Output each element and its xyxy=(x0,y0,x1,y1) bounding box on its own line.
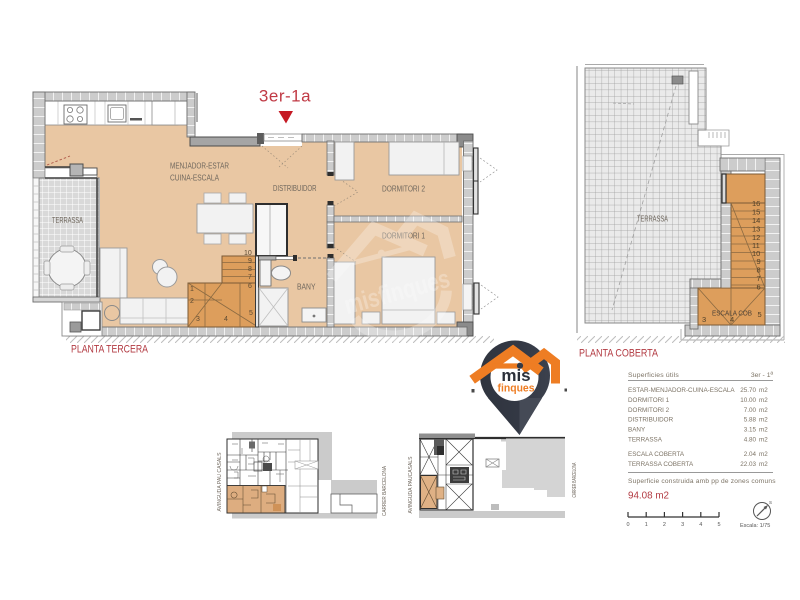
svg-text:MENJADOR-ESTAR: MENJADOR-ESTAR xyxy=(170,162,229,171)
svg-text:0: 0 xyxy=(627,522,630,528)
svg-text:m2: m2 xyxy=(759,387,768,394)
svg-text:94.08 m2: 94.08 m2 xyxy=(628,490,669,502)
svg-text:3er-1a: 3er-1a xyxy=(259,87,311,106)
svg-text:4.80: 4.80 xyxy=(744,437,757,444)
svg-text:Superficie construida amb pp d: Superficie construida amb pp de zones co… xyxy=(628,478,776,485)
svg-text:PLANTA COBERTA: PLANTA COBERTA xyxy=(579,348,659,360)
svg-text:4: 4 xyxy=(699,522,702,528)
svg-text:ESTAR-MENJADOR-CUINA-ESCALA: ESTAR-MENJADOR-CUINA-ESCALA xyxy=(628,387,735,394)
svg-text:25.70: 25.70 xyxy=(740,387,756,394)
svg-text:Escala: 1/75: Escala: 1/75 xyxy=(740,523,770,529)
svg-text:7.00: 7.00 xyxy=(744,407,757,414)
svg-text:3er - 1ª: 3er - 1ª xyxy=(751,372,774,379)
svg-text:4: 4 xyxy=(224,316,228,323)
svg-text:m2: m2 xyxy=(759,417,768,424)
svg-text:3: 3 xyxy=(681,522,684,528)
svg-text:4: 4 xyxy=(730,315,734,324)
svg-text:AVINGUDA PAU CASALS: AVINGUDA PAU CASALS xyxy=(217,452,223,511)
svg-text:5.88: 5.88 xyxy=(744,417,757,424)
svg-text:Superficies útils: Superficies útils xyxy=(628,372,679,379)
svg-text:10.00: 10.00 xyxy=(740,397,756,404)
svg-text:m2: m2 xyxy=(759,437,768,444)
svg-text:m2: m2 xyxy=(759,451,768,458)
svg-text:TERRASSA: TERRASSA xyxy=(628,437,663,444)
svg-text:DORMITORI 2: DORMITORI 2 xyxy=(382,185,425,194)
svg-text:3: 3 xyxy=(196,316,200,323)
svg-text:finques: finques xyxy=(498,383,535,395)
svg-text:9: 9 xyxy=(248,258,252,265)
svg-text:10: 10 xyxy=(244,250,252,257)
svg-text:CARRER BARCELONA: CARRER BARCELONA xyxy=(572,462,578,497)
svg-text:TERRASSA: TERRASSA xyxy=(52,216,83,225)
svg-text:TERRASSA COBERTA: TERRASSA COBERTA xyxy=(628,461,694,468)
svg-text:m2: m2 xyxy=(759,427,768,434)
svg-text:PLANTA TERCERA: PLANTA TERCERA xyxy=(71,344,149,356)
svg-text:S: S xyxy=(769,500,772,505)
svg-text:5: 5 xyxy=(758,310,762,319)
svg-text:CARRER BARCELONA: CARRER BARCELONA xyxy=(382,466,388,516)
svg-text:BANY: BANY xyxy=(628,427,646,434)
svg-text:6: 6 xyxy=(248,283,252,290)
svg-text:m2: m2 xyxy=(759,461,768,468)
svg-text:ESCALA COBERTA: ESCALA COBERTA xyxy=(628,451,685,458)
svg-text:DISTRIBUIDOR: DISTRIBUIDOR xyxy=(628,417,674,424)
svg-text:AVINGUDA PAUCASALS: AVINGUDA PAUCASALS xyxy=(408,456,414,513)
svg-text:3.15: 3.15 xyxy=(744,427,757,434)
svg-text:1: 1 xyxy=(190,286,194,293)
svg-text:DORMITORI 2: DORMITORI 2 xyxy=(628,407,670,414)
svg-text:2: 2 xyxy=(663,522,666,528)
svg-text:8: 8 xyxy=(248,266,252,273)
svg-text:22.03: 22.03 xyxy=(740,461,756,468)
svg-text:1: 1 xyxy=(645,522,648,528)
svg-text:m2: m2 xyxy=(759,407,768,414)
svg-text:2.04: 2.04 xyxy=(744,451,757,458)
svg-text:3: 3 xyxy=(702,315,706,324)
svg-text:DORMITORI 1: DORMITORI 1 xyxy=(628,397,670,404)
svg-text:6: 6 xyxy=(757,283,761,292)
svg-text:7: 7 xyxy=(248,274,252,281)
svg-text:2: 2 xyxy=(190,298,194,305)
svg-text:5: 5 xyxy=(718,522,721,528)
svg-text:m2: m2 xyxy=(759,397,768,404)
svg-text:CUINA-ESCALA: CUINA-ESCALA xyxy=(170,174,220,183)
svg-text:DISTRIBUIDOR: DISTRIBUIDOR xyxy=(273,184,317,193)
svg-text:TERRASSA: TERRASSA xyxy=(637,215,668,224)
svg-text:5: 5 xyxy=(249,310,253,317)
svg-text:BANY: BANY xyxy=(297,283,316,292)
